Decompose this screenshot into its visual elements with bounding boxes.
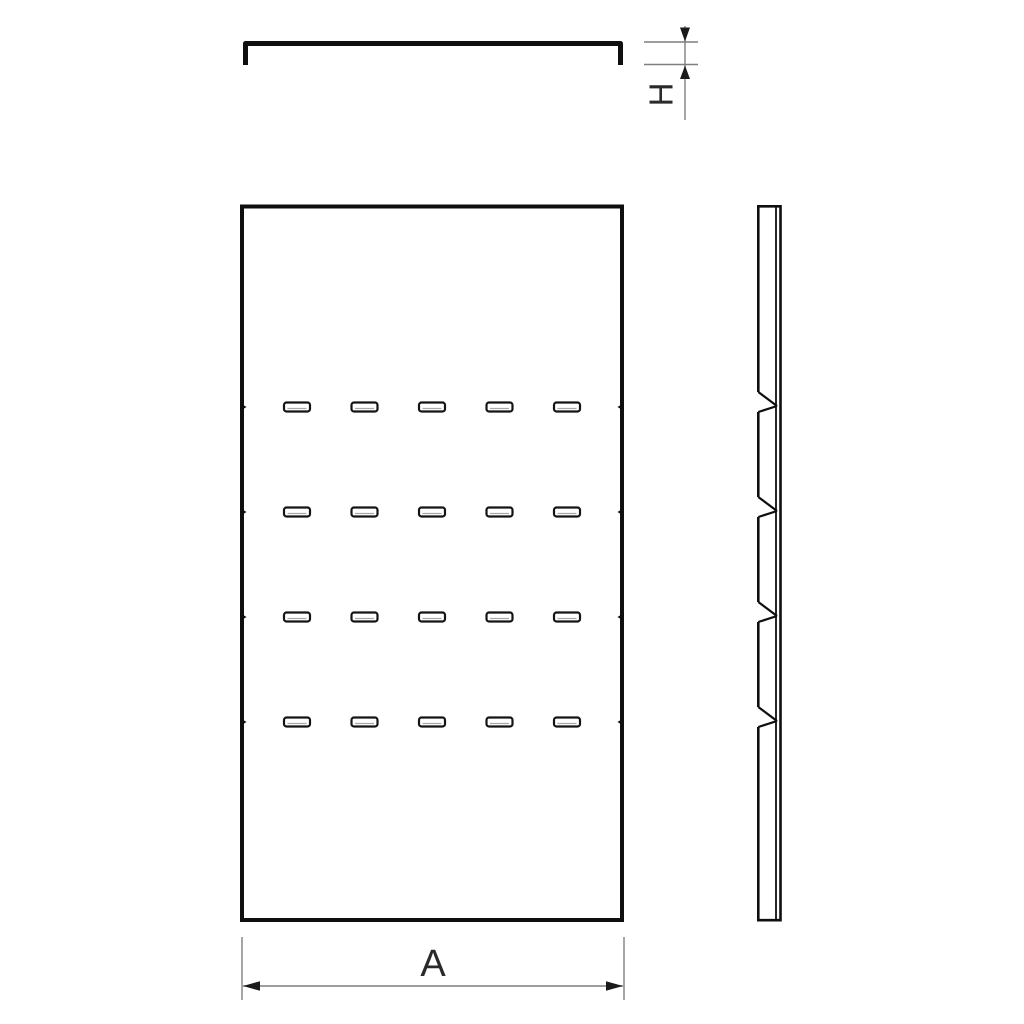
side-notches xyxy=(758,392,777,727)
slot xyxy=(487,718,513,727)
notch-lower-line xyxy=(758,511,777,517)
notch-upper-line xyxy=(758,602,777,616)
arrow-down-icon xyxy=(680,28,690,42)
slot xyxy=(352,718,378,727)
notch-upper-line xyxy=(758,707,777,721)
slot xyxy=(487,403,513,412)
arrow-up-icon xyxy=(680,66,690,80)
notch-lower-line xyxy=(758,406,777,412)
arrow-left-icon xyxy=(243,981,260,991)
slot xyxy=(352,508,378,517)
width-dimension-label: A xyxy=(420,943,446,985)
arrow-right-icon xyxy=(606,981,623,991)
slot xyxy=(419,403,445,412)
slot xyxy=(284,403,310,412)
slot xyxy=(554,508,580,517)
slot xyxy=(554,718,580,727)
profile-view xyxy=(246,44,621,66)
slot xyxy=(284,613,310,622)
height-dimension-label: H xyxy=(643,83,680,107)
slot xyxy=(284,718,310,727)
cover-profile-outline xyxy=(246,44,621,66)
notch-lower-line xyxy=(758,721,777,727)
slot xyxy=(487,508,513,517)
notch-upper-line xyxy=(758,392,777,406)
slot xyxy=(487,613,513,622)
slot xyxy=(284,508,310,517)
drawing-svg: H A xyxy=(0,0,1024,1024)
slot xyxy=(554,613,580,622)
side-view xyxy=(757,205,782,922)
slot xyxy=(352,403,378,412)
cover-plate-outline xyxy=(242,207,622,921)
notch-lower-line xyxy=(758,616,777,622)
width-dimension: A xyxy=(242,937,624,1000)
slot xyxy=(554,403,580,412)
height-dimension: H xyxy=(643,26,699,120)
notch-upper-line xyxy=(758,497,777,511)
slot xyxy=(419,508,445,517)
technical-drawing-canvas: H A xyxy=(0,0,1024,1024)
slot xyxy=(419,718,445,727)
front-view xyxy=(240,207,624,921)
slot xyxy=(352,613,378,622)
slot xyxy=(419,613,445,622)
